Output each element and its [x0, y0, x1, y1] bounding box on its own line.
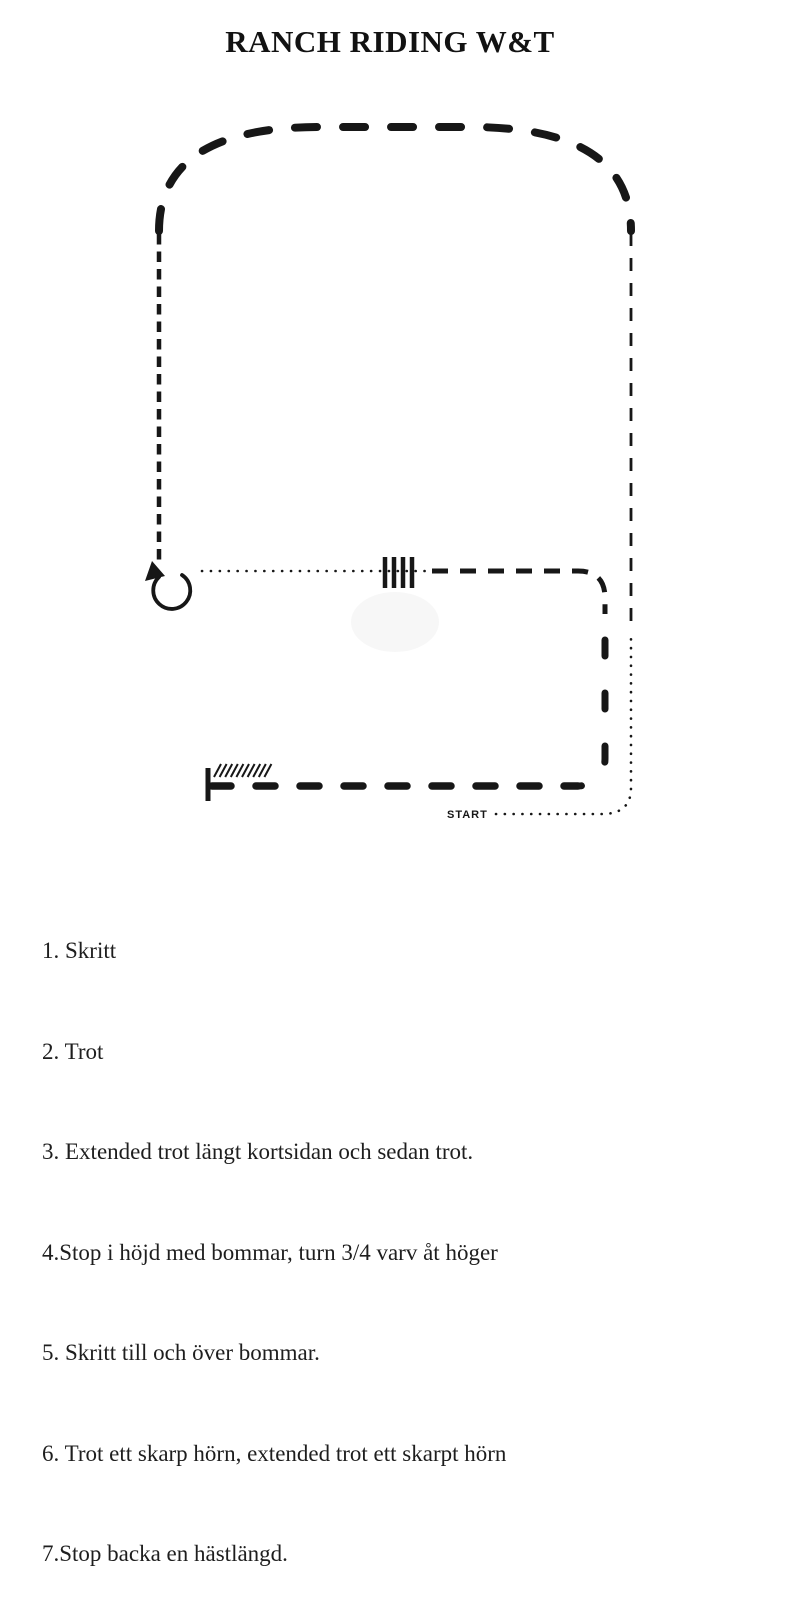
- pattern-diagram: START: [0, 0, 800, 850]
- instruction-item: 4.Stop i höjd med bommar, turn 3/4 varv …: [42, 1236, 506, 1270]
- corner-vertical-path: [577, 640, 605, 786]
- instruction-item: 5. Skritt till och över bommar.: [42, 1336, 506, 1370]
- faint-smudge: [351, 592, 439, 652]
- extended-trot-top-arc-path: [159, 127, 631, 231]
- instruction-item: 2. Trot: [42, 1035, 506, 1069]
- turn-circle: [153, 575, 190, 609]
- instructions-list: 1. Skritt 2. Trot 3. Extended trot längt…: [42, 867, 506, 1604]
- turn-arrow-icon: [145, 561, 165, 581]
- trot-after-poles-path: [432, 571, 605, 614]
- instruction-item: 1. Skritt: [42, 934, 506, 968]
- start-label: START: [447, 809, 488, 821]
- backup-hatch-marks: [214, 764, 271, 777]
- ground-poles: [385, 557, 412, 588]
- instruction-item: 3. Extended trot längt kortsidan och sed…: [42, 1135, 506, 1169]
- instruction-item: 7.Stop backa en hästlängd.: [42, 1537, 506, 1571]
- instruction-item: 6. Trot ett skarp hörn, extended trot et…: [42, 1437, 506, 1471]
